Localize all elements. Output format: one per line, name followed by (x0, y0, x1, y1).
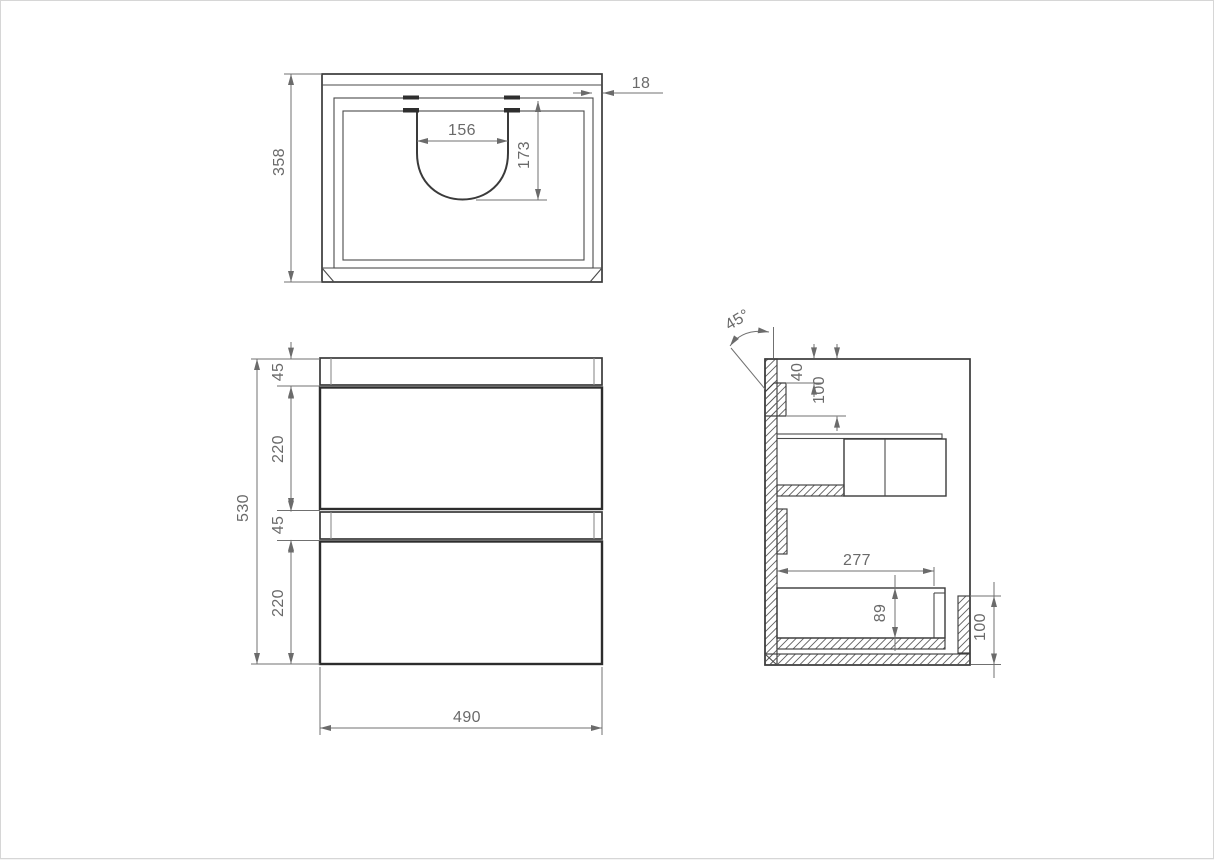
dim-label-220-top: 220 (270, 435, 287, 463)
lower-drawer-box (777, 588, 945, 638)
dim-overall-height: 530 (235, 359, 257, 664)
cutout-clip-right-top (504, 96, 520, 100)
dim-drawer-depth: 277 (777, 552, 934, 586)
dim-top-rail: 45 (270, 342, 291, 402)
dim-label-89: 89 (872, 604, 889, 623)
dim-label-45-mid: 45 (270, 516, 287, 535)
dim-mid-rail: 45 (270, 496, 291, 555)
cutout-clip-right-bottom (504, 108, 520, 113)
top-view-bevel-left (322, 268, 334, 282)
top-view-outer-outline (322, 74, 602, 282)
front-top-rail (320, 358, 602, 385)
dim-label-358: 358 (271, 148, 288, 176)
front-drawer-lower (320, 542, 602, 665)
cabinet-bottom-section (765, 654, 970, 665)
dim-label-45deg: 45° (722, 306, 753, 334)
dim-label-18: 18 (632, 75, 651, 92)
dim-width: 490 (320, 667, 602, 735)
dim-plinth-height: 100 (970, 582, 1001, 678)
upper-drawer-box (844, 439, 946, 496)
dim-lower-drawer: 220 (270, 542, 291, 665)
dim-label-173: 173 (516, 141, 533, 169)
dim-rail-bottom-offset: 100 (787, 344, 846, 431)
cabinet-drawing: 358 18 156 173 (1, 1, 1214, 860)
top-view: 358 18 156 173 (271, 74, 663, 282)
front-drawer-upper (320, 388, 602, 510)
dim-upper-drawer: 220 (270, 388, 291, 510)
dim-label-277: 277 (843, 552, 871, 569)
side-outline (765, 359, 970, 665)
cutout-clip-left-top (403, 96, 419, 100)
upper-drawer-runner (777, 434, 942, 439)
dim-label-100-plinth: 100 (972, 613, 989, 641)
technical-drawing-canvas: 358 18 156 173 (0, 0, 1214, 859)
upper-drawer-bottom-section (777, 485, 844, 496)
dim-label-220-bottom: 220 (270, 589, 287, 617)
dim-top-height: 358 (271, 74, 322, 282)
dim-label-40: 40 (789, 363, 806, 382)
dim-panel-thickness: 18 (573, 75, 663, 93)
top-view-bevel-right (590, 268, 602, 282)
cutout-clip-left-bottom (403, 108, 419, 113)
dim-cutout-depth: 173 (476, 101, 547, 200)
front-plinth-section (958, 596, 970, 653)
dim-label-530: 530 (235, 494, 252, 522)
dim-label-45-top: 45 (270, 363, 287, 382)
hanging-rail-mid-section (777, 509, 787, 554)
side-view: 45° 40 100 277 89 (722, 306, 1001, 678)
lower-drawer-bottom-section (777, 638, 945, 649)
front-mid-rail (320, 512, 602, 539)
front-view: 530 45 220 45 220 490 (235, 342, 602, 735)
dim-cutout-width: 156 (417, 122, 508, 141)
dim-label-490: 490 (453, 709, 481, 726)
dim-label-100-rail: 100 (811, 376, 828, 404)
dim-label-156: 156 (448, 122, 476, 139)
